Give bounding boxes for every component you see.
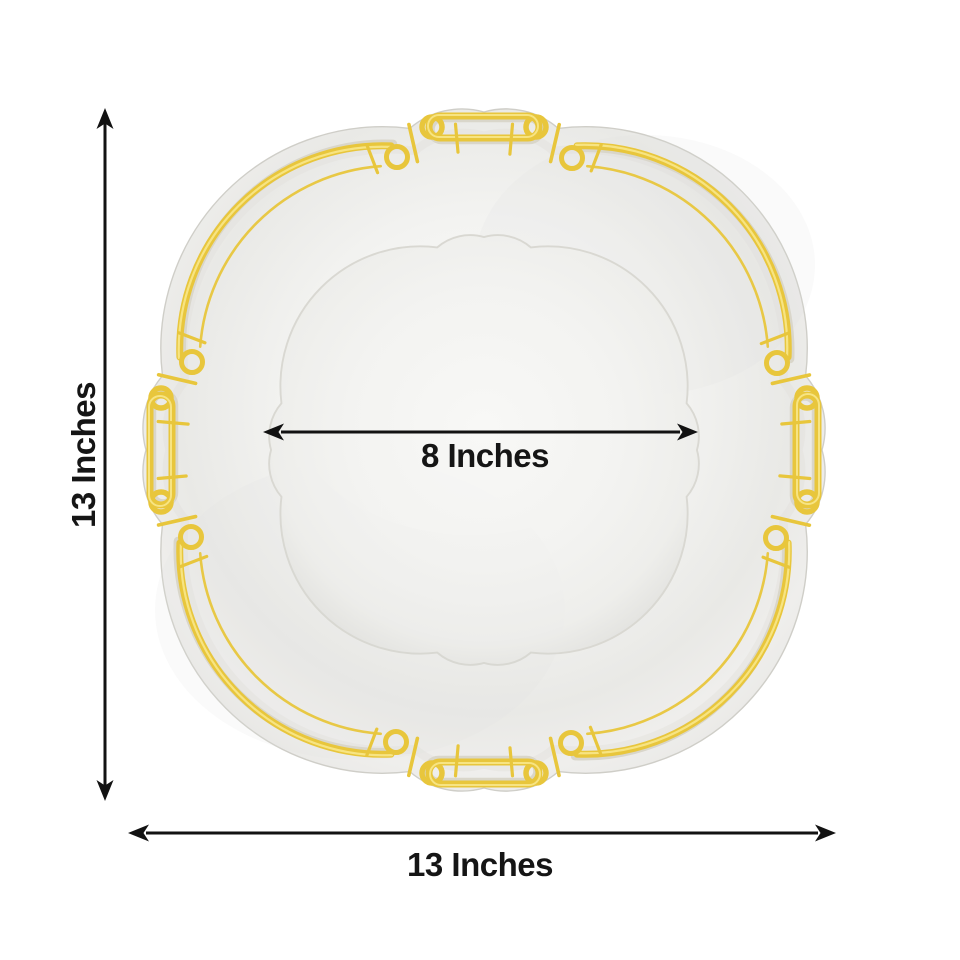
- height-label: 13 Inches: [65, 382, 102, 528]
- width-dimension: 13 Inches: [128, 825, 836, 884]
- inner-diameter-label: 8 Inches: [421, 437, 549, 474]
- product-dimension-diagram: 13 Inches 8 Inches 13 Inches: [0, 0, 960, 960]
- height-dimension: 13 Inches: [65, 108, 114, 801]
- arrow-right-icon: [815, 825, 836, 842]
- arrow-left-icon: [128, 825, 149, 842]
- plate-dimension-canvas: 13 Inches 8 Inches 13 Inches: [0, 0, 960, 960]
- width-label: 13 Inches: [407, 846, 553, 883]
